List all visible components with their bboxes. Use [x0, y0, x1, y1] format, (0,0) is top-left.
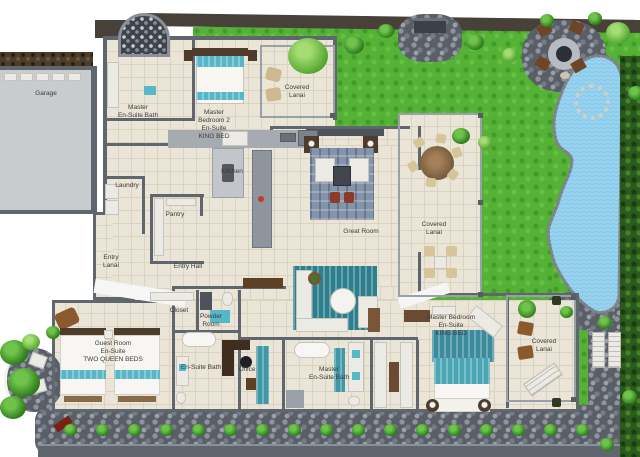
room-label-master-bedroom-2: Master Bedroom 2 En-Suite KING BED [198, 109, 230, 142]
room-label-covered-lanai-right: Covered Lanai [422, 221, 447, 237]
room-label-pantry: Pantry [166, 211, 185, 219]
room-label-master-ensuite-bath-2: Master En-Suite Bath [118, 104, 158, 120]
room-label-office: Office [239, 366, 256, 374]
floor-plan-canvas: GarageMaster En-Suite BathMaster Bedroom… [0, 0, 640, 457]
room-label-guest-room: Guest Room En-Suite TWO QUEEN BEDS [83, 340, 143, 364]
room-label-powder-room: Powder Room [200, 313, 222, 329]
room-labels-layer: GarageMaster En-Suite BathMaster Bedroom… [0, 0, 640, 457]
room-label-great-room: Great Room [343, 228, 378, 236]
room-label-entry-lanai: Entry Lanai [103, 254, 119, 270]
room-label-master-bedroom: Master Bedroom En-Suite KING BED [427, 314, 475, 338]
room-label-covered-lanai-top: Covered Lanai [285, 84, 310, 100]
room-label-entry-hall: Entry Hall [174, 263, 202, 271]
room-label-garage: Garage [35, 90, 57, 98]
room-label-laundry: Laundry [115, 182, 139, 190]
room-label-master-ensuite-bath: Master En-Suite Bath [309, 366, 349, 382]
room-label-covered-lanai-bottom: Covered Lanai [532, 338, 557, 354]
room-label-kitchen: Kitchen [221, 168, 243, 176]
room-label-guest-ensuite-bath: En-Suite Bath [181, 364, 221, 372]
room-label-closet: Closet [170, 307, 188, 315]
